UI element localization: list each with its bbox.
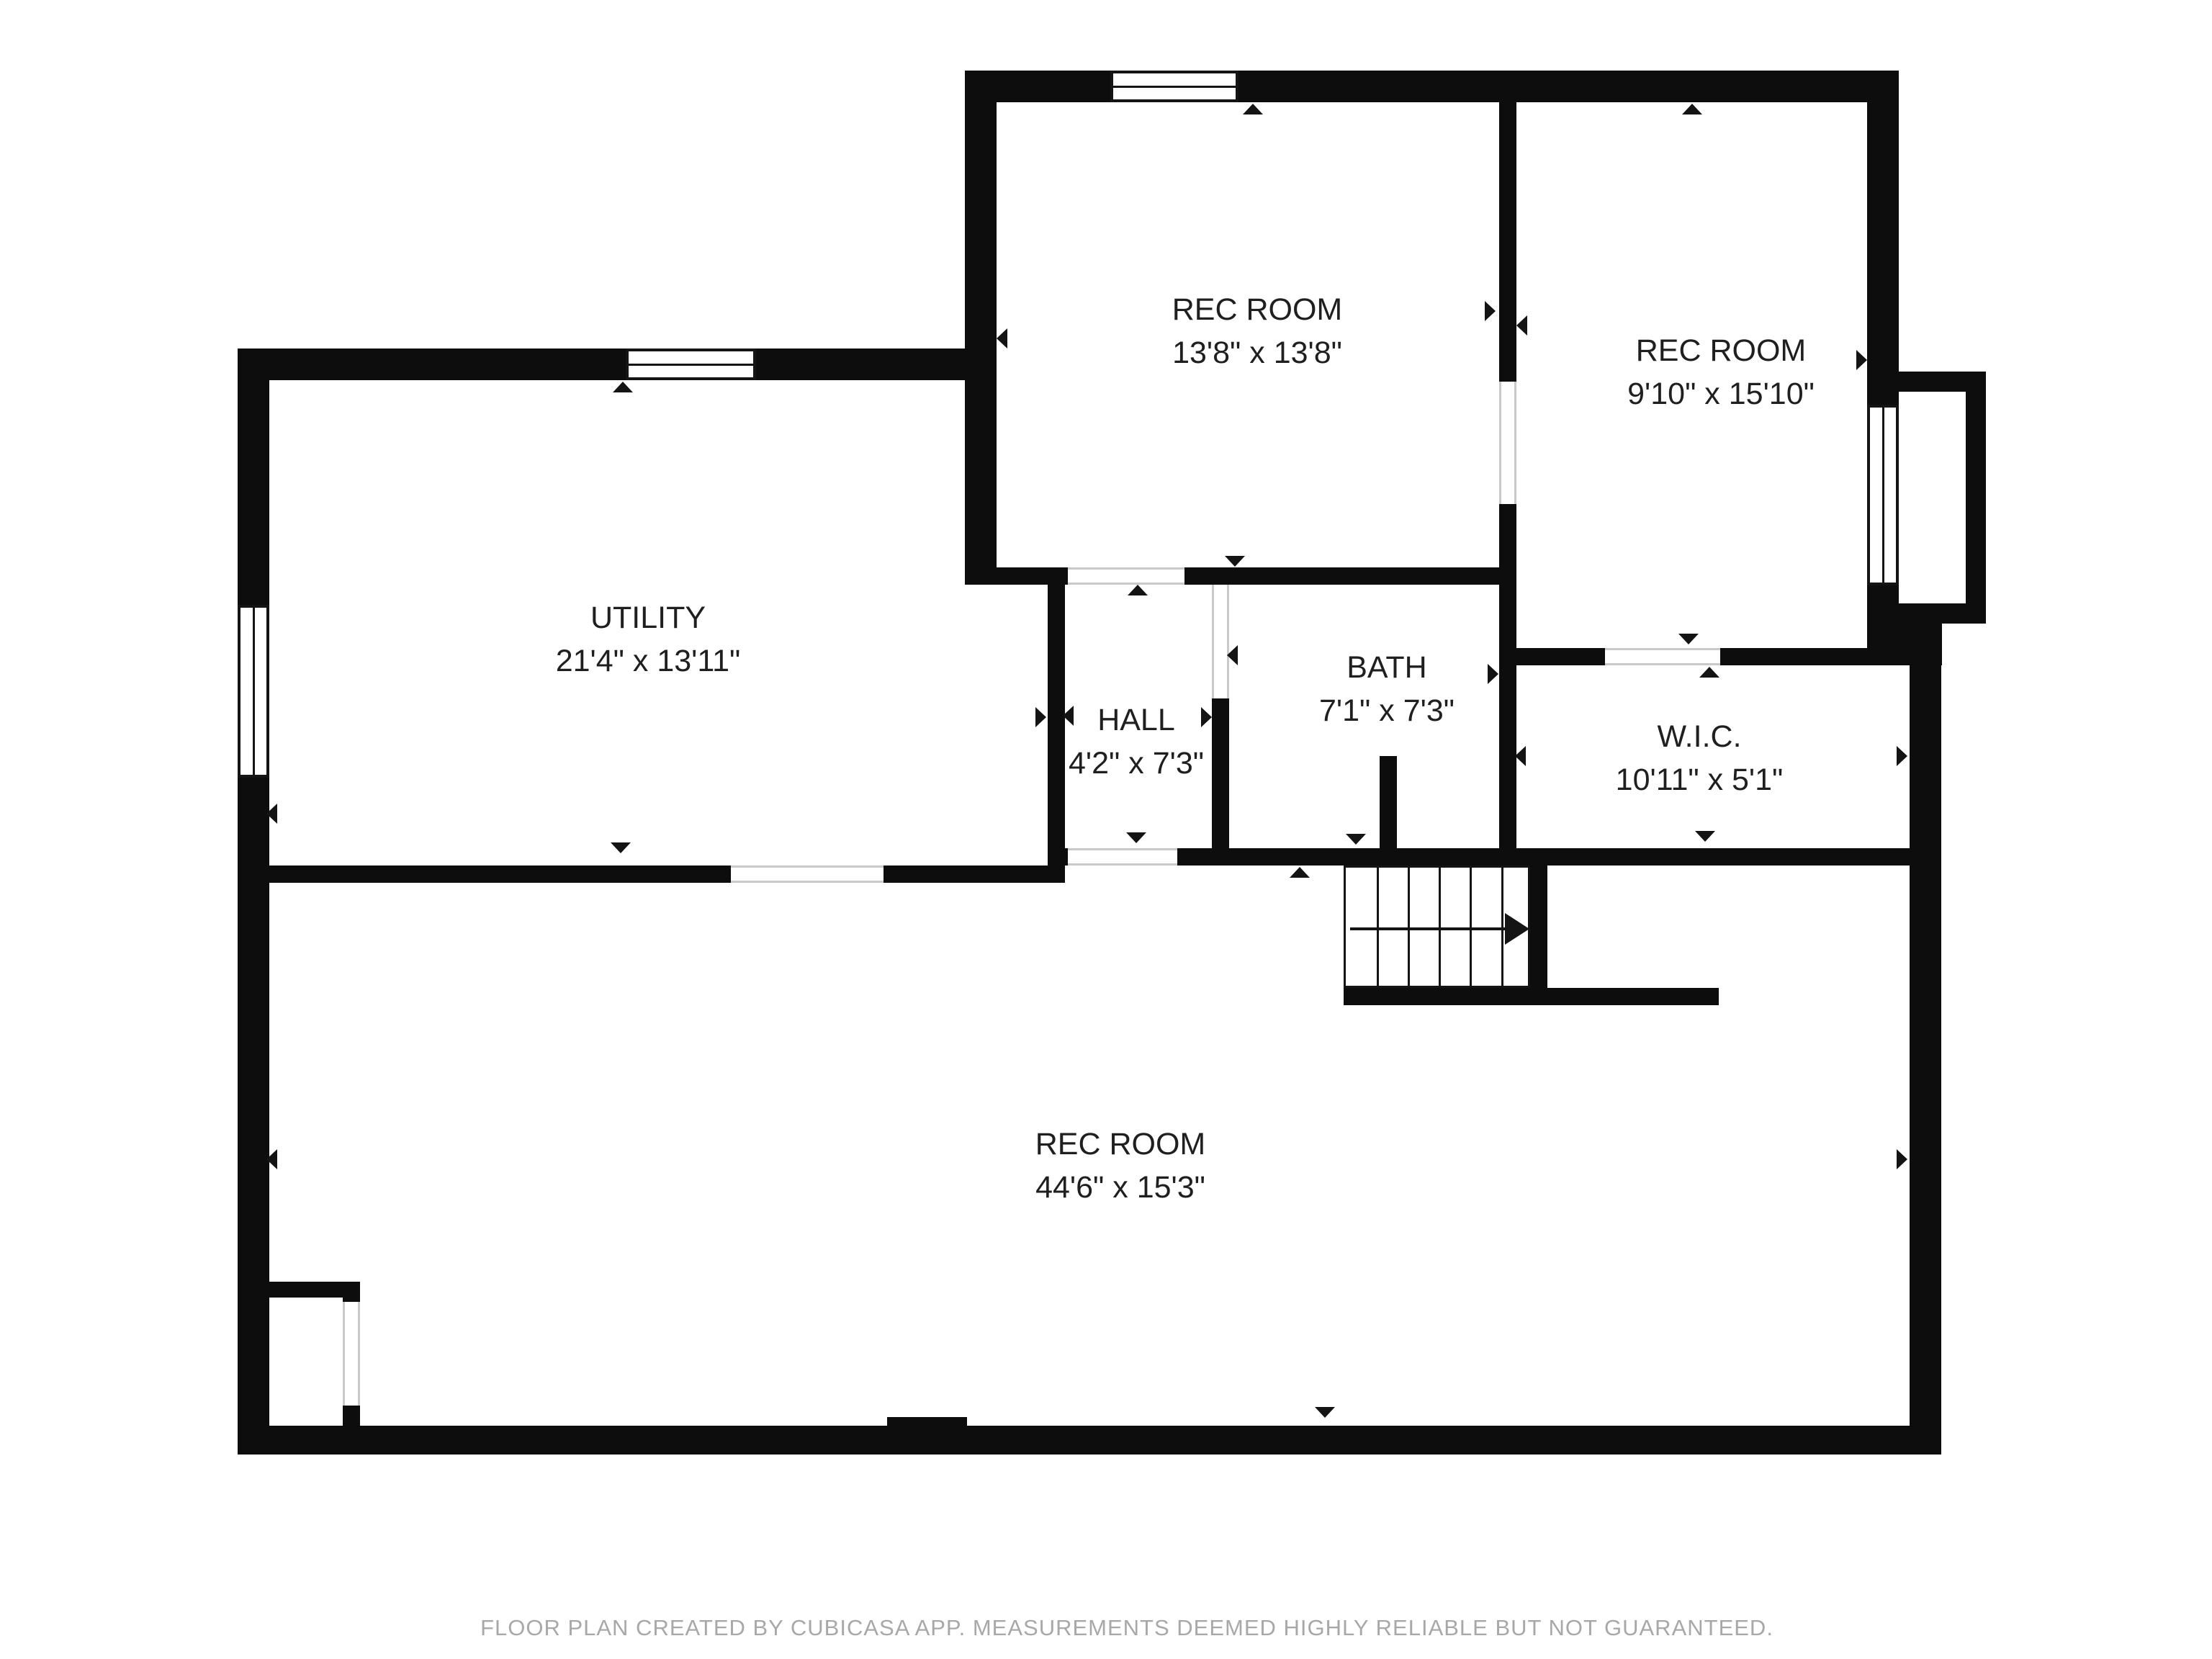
measure-tick-right xyxy=(1856,350,1867,370)
measure-tick-down xyxy=(1678,634,1699,644)
footer-disclaimer: FLOOR PLAN CREATED BY CUBICASA APP. MEAS… xyxy=(0,1615,2212,1641)
measure-tick-up xyxy=(1243,104,1263,114)
measure-tick-right xyxy=(1488,664,1498,684)
stair-tread-line xyxy=(1377,868,1379,986)
measure-tick-up xyxy=(1682,104,1702,114)
measure-tick-up xyxy=(1699,667,1719,678)
room-name: REC ROOM xyxy=(1172,288,1343,331)
stair-tread-line xyxy=(1439,868,1441,986)
measure-tick-up xyxy=(613,382,633,392)
stair-tread-line xyxy=(1408,868,1410,986)
measure-tick-left xyxy=(1515,746,1526,766)
wall xyxy=(1530,866,1547,1005)
window xyxy=(238,605,269,778)
room-dimensions: 7'1" x 7'3" xyxy=(1319,689,1455,732)
door-opening xyxy=(1068,567,1184,585)
room-label-rec-room-bottom: REC ROOM44'6" x 15'3" xyxy=(1035,1123,1206,1209)
measure-tick-left xyxy=(266,804,277,824)
room-label-rec-room-top: REC ROOM13'8" x 13'8" xyxy=(1172,288,1343,374)
room-dimensions: 21'4" x 13'11" xyxy=(556,639,741,683)
measure-tick-down xyxy=(1695,831,1715,842)
measure-tick-left xyxy=(1227,645,1238,665)
measure-tick-left xyxy=(266,1149,277,1169)
measure-tick-down xyxy=(1126,832,1146,843)
room-label-wic: W.I.C.10'11" x 5'1" xyxy=(1616,715,1784,801)
measure-tick-down xyxy=(611,842,631,853)
wall xyxy=(238,1426,1941,1455)
measure-tick-up xyxy=(1128,585,1148,595)
door-opening xyxy=(731,866,884,883)
measure-tick-down xyxy=(1346,834,1366,845)
wall xyxy=(1499,71,1516,382)
wall xyxy=(1344,988,1719,1005)
wall xyxy=(965,71,1899,102)
room-dimensions: 13'8" x 13'8" xyxy=(1172,331,1343,374)
room-label-bath: BATH7'1" x 7'3" xyxy=(1319,646,1455,732)
stair-tread-line xyxy=(1501,868,1503,986)
staircase xyxy=(1344,866,1530,988)
room-name: W.I.C. xyxy=(1616,715,1784,758)
door-opening xyxy=(1212,585,1229,698)
window xyxy=(1867,405,1899,585)
room-name: REC ROOM xyxy=(1627,329,1815,372)
door-opening xyxy=(1499,382,1516,504)
measure-tick-left xyxy=(1516,315,1527,336)
wall xyxy=(1966,372,1986,624)
floor-plan: FLOOR PLAN CREATED BY CUBICASA APP. MEAS… xyxy=(0,0,2212,1659)
room-label-rec-room-right: REC ROOM9'10" x 15'10" xyxy=(1627,329,1815,415)
window-mid-line xyxy=(1113,86,1236,88)
room-name: HALL xyxy=(1069,698,1204,742)
room-dimensions: 4'2" x 7'3" xyxy=(1069,742,1204,785)
measure-tick-down xyxy=(1225,556,1245,567)
window-mid-line xyxy=(1882,408,1884,583)
room-label-hall: HALL4'2" x 7'3" xyxy=(1069,698,1204,785)
window-mid-line xyxy=(629,364,753,366)
stair-tread-line xyxy=(1470,868,1472,986)
wall xyxy=(238,866,1065,883)
window-mid-line xyxy=(253,608,255,775)
door-opening xyxy=(1068,848,1177,866)
room-dimensions: 9'10" x 15'10" xyxy=(1627,372,1815,415)
window xyxy=(626,349,756,380)
stair-direction-arrow xyxy=(1350,927,1508,930)
room-name: BATH xyxy=(1319,646,1455,689)
wall xyxy=(1516,648,1942,665)
wall xyxy=(887,1417,967,1426)
wall xyxy=(1910,665,1941,1455)
measure-tick-up xyxy=(1290,867,1310,878)
room-label-utility: UTILITY21'4" x 13'11" xyxy=(556,596,741,683)
measure-tick-right xyxy=(1897,746,1907,766)
measure-tick-down xyxy=(1315,1407,1335,1418)
measure-tick-right xyxy=(1897,1149,1907,1169)
wall xyxy=(1380,756,1397,848)
measure-tick-left xyxy=(997,328,1007,349)
room-dimensions: 10'11" x 5'1" xyxy=(1616,758,1784,801)
stair-direction-arrow-head xyxy=(1505,913,1529,945)
wall xyxy=(965,102,997,567)
wall xyxy=(1499,504,1516,848)
room-name: UTILITY xyxy=(556,596,741,639)
wall xyxy=(238,1282,359,1298)
wall xyxy=(238,349,269,1426)
measure-tick-right xyxy=(1485,301,1496,321)
door-opening xyxy=(343,1302,360,1406)
room-name: REC ROOM xyxy=(1035,1123,1206,1166)
window xyxy=(1110,71,1238,102)
measure-tick-right xyxy=(1035,707,1046,727)
door-opening xyxy=(1605,648,1720,665)
wall xyxy=(238,349,997,380)
room-dimensions: 44'6" x 15'3" xyxy=(1035,1166,1206,1209)
